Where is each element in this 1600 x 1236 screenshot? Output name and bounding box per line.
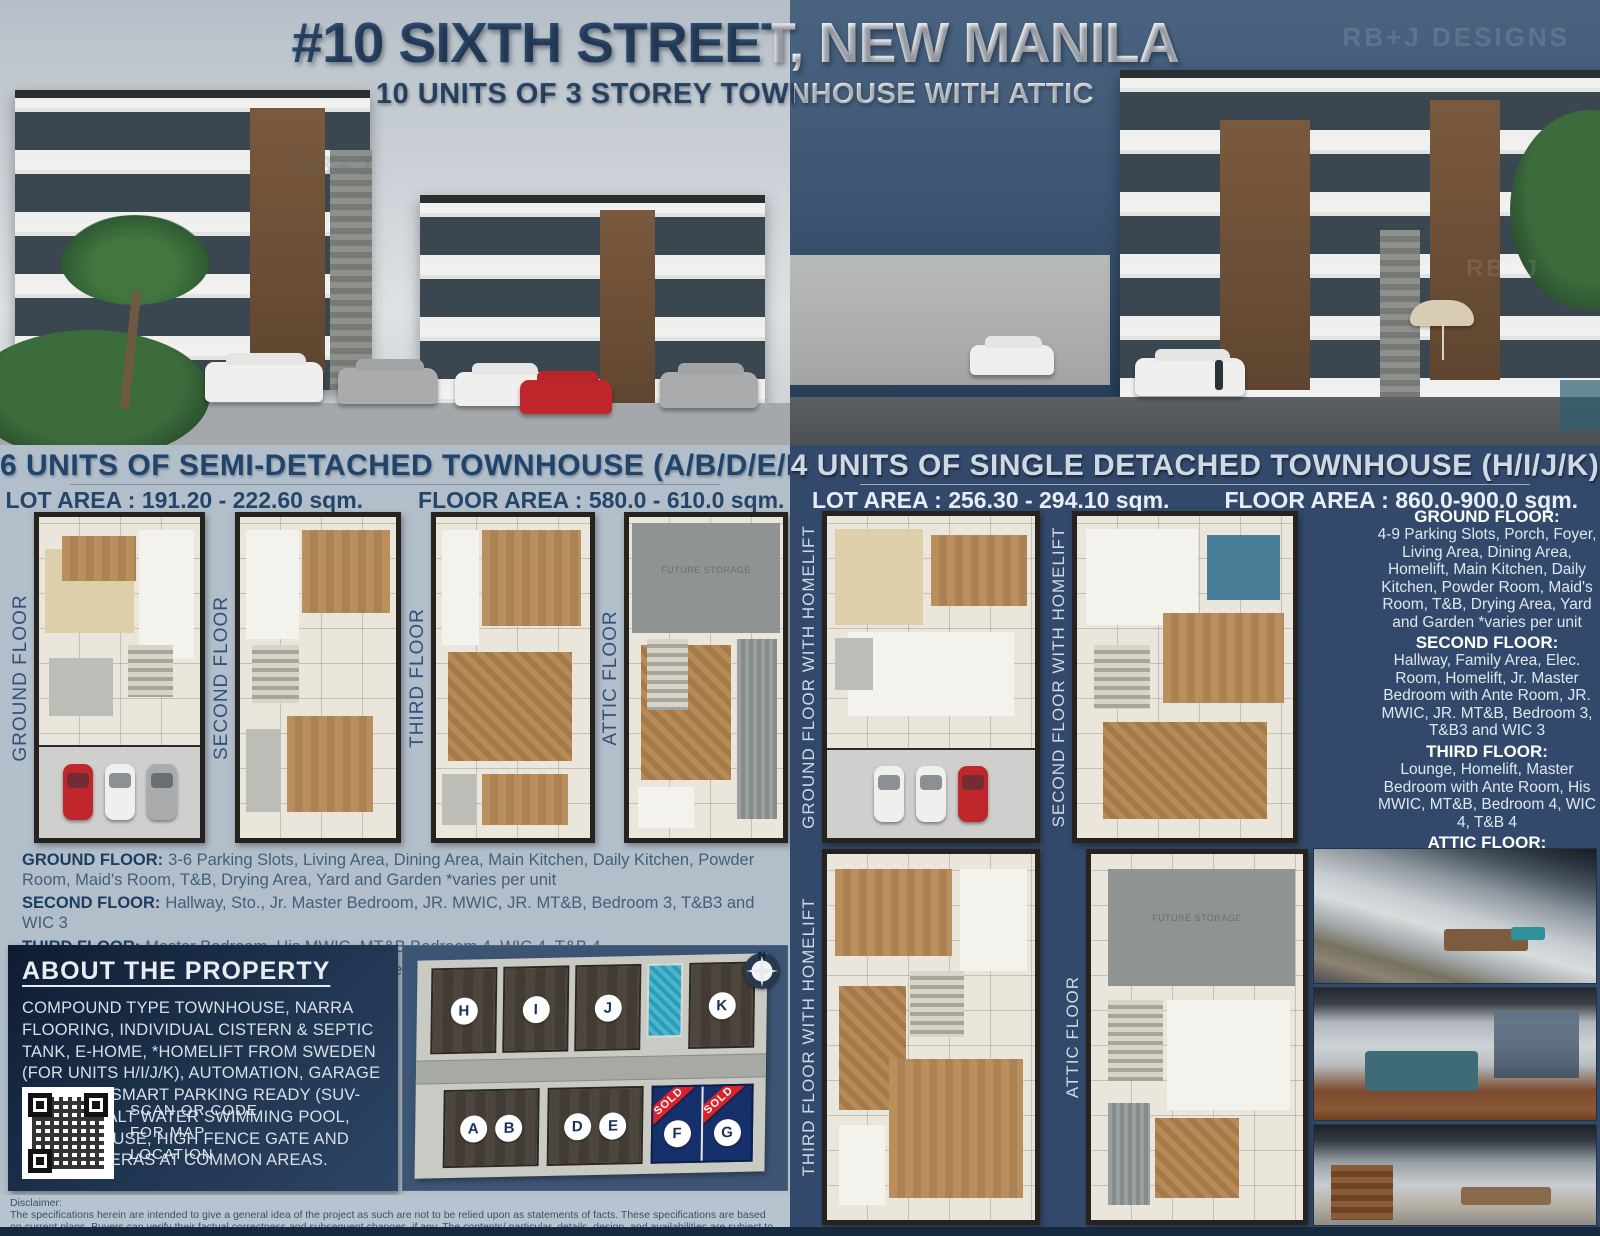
road (790, 397, 1600, 445)
unit-h: H (430, 967, 497, 1054)
building-wood-panel (250, 108, 325, 378)
interior-photo-living (1314, 849, 1596, 983)
unit-d-e: D E (547, 1086, 644, 1166)
parked-car (958, 766, 988, 822)
swimming-pool (646, 963, 683, 1038)
umbrella (1410, 300, 1474, 326)
single-detached-section: 4 UNITS OF SINGLE DETACHED TOWNHOUSE (H/… (790, 445, 1600, 1236)
floor-name: SECOND FLOOR: (22, 894, 160, 912)
right-floor-descriptions: GROUND FLOOR: 4-9 Parking Slots, Porch, … (1376, 505, 1598, 905)
car (660, 372, 758, 408)
floorplan-second-homelift: SECOND FLOOR WITH HOMELIFT (1046, 511, 1298, 843)
unit-g: SOLD G (701, 1086, 752, 1161)
floorplan-ground-homelift: GROUND FLOOR WITH HOMELIFT (796, 511, 1040, 843)
unit-a-b: A B (443, 1088, 540, 1168)
floorplan-drawing (822, 849, 1040, 1225)
building-wood-panel (600, 210, 655, 410)
floorplan-attic-right: ATTIC FLOOR FUTURE STORAGE (1060, 849, 1308, 1225)
floor-name: GROUND FLOOR: (22, 851, 163, 869)
floor-name: GROUND FLOOR: (1376, 507, 1598, 526)
car (205, 362, 323, 402)
unit-f: SOLD F (653, 1087, 702, 1162)
car (338, 368, 438, 404)
parked-car (105, 764, 135, 820)
floorplan-drawing (1072, 511, 1298, 843)
page-subtitle: 10 UNITS OF 3 STOREY TOWNHOUSE WITH ATTI… (0, 78, 1470, 111)
compass-icon: N (744, 953, 780, 989)
left-floor-area: FLOOR AREA : 580.0 - 610.0 sqm. (418, 487, 784, 514)
site-plan-lot: H I J K A B D E SOLD F (415, 953, 768, 1178)
qr-caption: SCAN QR CODE FOR MAP LOCATION (130, 1100, 258, 1165)
page-title: #10 SIXTH STREET, NEW MANILA (0, 10, 1470, 76)
floorplan-label: SECOND FLOOR (209, 512, 235, 843)
car (1135, 358, 1245, 396)
floor-desc: Lounge, Homelift, Master Bedroom with An… (1376, 761, 1598, 831)
floorplan-drawing (431, 512, 595, 843)
parked-car (63, 764, 93, 820)
disclaimer: Disclaimer: The specifications herein ar… (0, 1195, 790, 1227)
staircase (1331, 1165, 1393, 1220)
divider (70, 484, 720, 485)
future-storage-label: FUTURE STORAGE (629, 565, 783, 575)
semi-detached-section: 6 UNITS OF SEMI-DETACHED TOWNHOUSE (A/B/… (0, 445, 790, 1236)
floor-name: THIRD FLOOR: (1376, 742, 1598, 761)
property-flyer: RB+J RB+J DESIGNS RB+J #10 SIXTH STREET,… (0, 0, 1600, 1236)
floorplan-label: THIRD FLOOR (405, 512, 431, 843)
about-heading: ABOUT THE PROPERTY (22, 957, 384, 986)
floor-name: SECOND FLOOR: (1376, 633, 1598, 652)
site-plan: H I J K A B D E SOLD F (402, 945, 788, 1191)
interior-photo-bedroom (1314, 988, 1596, 1120)
divider (860, 484, 1530, 485)
floor-desc: 4-9 Parking Slots, Porch, Foyer, Living … (1376, 526, 1598, 631)
floorplan-drawing (34, 512, 205, 843)
floorplan-drawing: FUTURE STORAGE (1086, 849, 1308, 1225)
left-lot-area: LOT AREA : 191.20 - 222.60 sqm. (6, 487, 364, 514)
sold-units: SOLD F SOLD G (651, 1084, 754, 1164)
flyer-title-block: #10 SIXTH STREET, NEW MANILA 10 UNITS OF… (0, 10, 1470, 111)
accent-chair (1511, 927, 1545, 940)
perimeter-wall (790, 255, 1110, 385)
car (970, 345, 1054, 375)
pool-edge (1560, 380, 1600, 430)
left-section-title: 6 UNITS OF SEMI-DETACHED TOWNHOUSE (A/B/… (0, 449, 790, 483)
floorplan-attic: ATTIC FLOOR FUTURE STORAGE (598, 512, 788, 843)
cyclist (1215, 360, 1223, 390)
floorplan-drawing: FUTURE STORAGE (624, 512, 788, 843)
floorplan-third-homelift: THIRD FLOOR WITH HOMELIFT (796, 849, 1040, 1225)
qr-finder-icon (28, 1149, 52, 1173)
building-stone-column (330, 150, 372, 390)
right-section-title: 4 UNITS OF SINGLE DETACHED TOWNHOUSE (H/… (790, 449, 1600, 483)
floorplan-label: THIRD FLOOR WITH HOMELIFT (796, 849, 822, 1225)
future-storage-label: FUTURE STORAGE (1091, 913, 1303, 923)
unit-j: J (574, 964, 641, 1051)
internal-road (416, 1053, 766, 1084)
floorplan-second: SECOND FLOOR (209, 512, 401, 843)
unit-i: I (502, 965, 569, 1052)
bed (1365, 1051, 1478, 1091)
window (1494, 1012, 1579, 1078)
qr-code (22, 1087, 114, 1179)
parked-car (147, 764, 177, 820)
parked-car (916, 766, 946, 822)
disclaimer-label: Disclaimer: (10, 1197, 780, 1209)
right-lot-area: LOT AREA : 256.30 - 294.10 sqm. (812, 487, 1170, 514)
left-section-header: 6 UNITS OF SEMI-DETACHED TOWNHOUSE (A/B/… (0, 449, 790, 514)
bottom-border (0, 1227, 1600, 1236)
floorplan-label: ATTIC FLOOR (1060, 849, 1086, 1225)
car (520, 380, 612, 414)
floorplan-label: GROUND FLOOR WITH HOMELIFT (796, 511, 822, 843)
sofa (1461, 1187, 1551, 1205)
floorplan-third: THIRD FLOOR (405, 512, 595, 843)
floorplan-label: GROUND FLOOR (8, 512, 34, 843)
floorplan-label: SECOND FLOOR WITH HOMELIFT (1046, 511, 1072, 843)
about-property-panel: ABOUT THE PROPERTY COMPOUND TYPE TOWNHOU… (8, 945, 398, 1191)
qr-finder-icon (84, 1093, 108, 1117)
floorplan-ground: GROUND FLOOR (8, 512, 205, 843)
floorplan-drawing (235, 512, 401, 843)
building-wood-panel (1430, 100, 1500, 380)
interior-photo-stairs (1314, 1125, 1596, 1225)
qr-finder-icon (28, 1093, 52, 1117)
floor-desc: Hallway, Family Area, Elec. Room, Homeli… (1376, 652, 1598, 740)
floorplan-label: ATTIC FLOOR (598, 512, 624, 843)
building-wood-panel (1220, 120, 1310, 390)
parked-car (874, 766, 904, 822)
floorplan-drawing (822, 511, 1040, 843)
